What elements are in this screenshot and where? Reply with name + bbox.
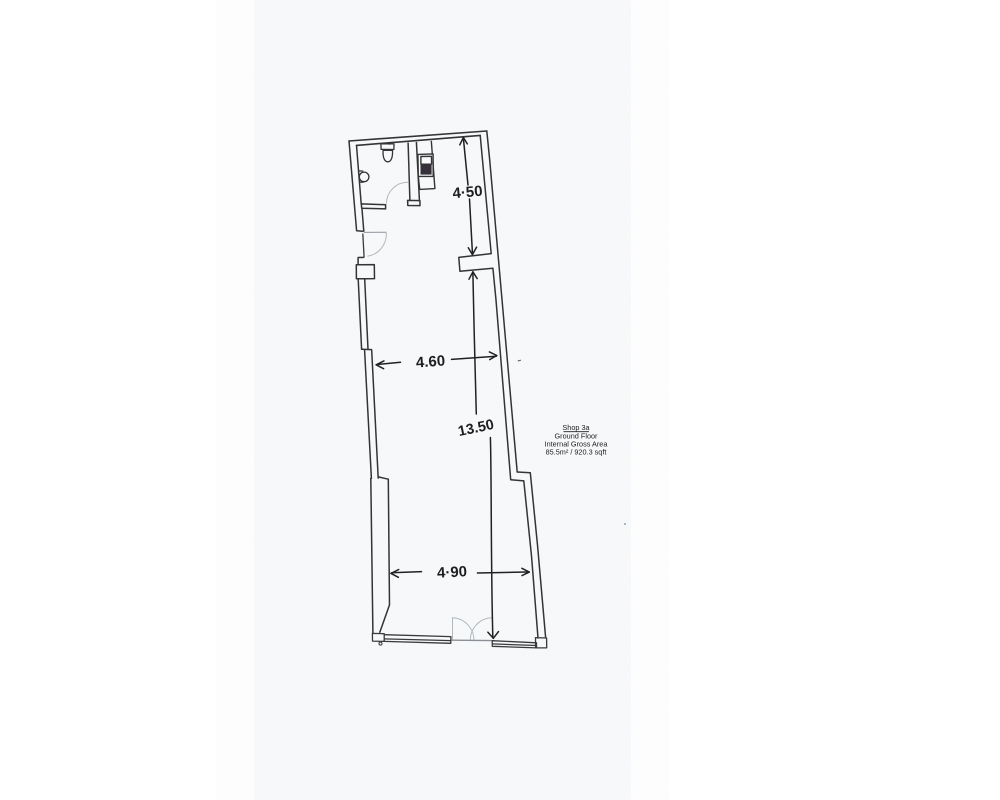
svg-text:4.60: 4.60 [415,352,445,371]
svg-text:85.5m² / 920.3 sqft: 85.5m² / 920.3 sqft [546,448,607,457]
svg-text:4·90: 4·90 [437,563,468,582]
svg-text:4·50: 4·50 [452,183,483,203]
